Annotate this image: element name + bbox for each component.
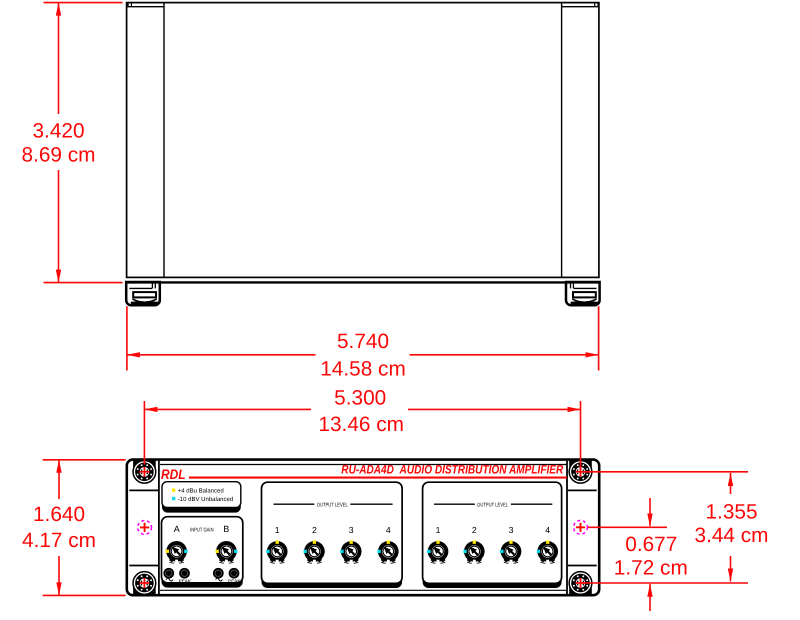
- svg-text:5.300: 5.300: [334, 387, 386, 410]
- svg-text:RDL: RDL: [161, 467, 186, 482]
- svg-text:OUTPUT LEVEL: OUTPUT LEVEL: [477, 502, 508, 508]
- svg-text:3.420: 3.420: [32, 120, 84, 143]
- svg-text:B: B: [223, 524, 229, 534]
- svg-text:13.46 cm: 13.46 cm: [318, 413, 404, 436]
- svg-text:3: 3: [509, 525, 514, 535]
- svg-text:3.44 cm: 3.44 cm: [695, 524, 769, 547]
- svg-text:A: A: [174, 524, 180, 534]
- svg-text:-10 dBV Unbalanced: -10 dBV Unbalanced: [178, 496, 233, 503]
- svg-text:4.17 cm: 4.17 cm: [22, 529, 96, 552]
- svg-text:1: 1: [436, 525, 441, 535]
- svg-text:2: 2: [312, 525, 317, 535]
- svg-text:4: 4: [545, 525, 550, 535]
- svg-text:1.72 cm: 1.72 cm: [614, 557, 688, 580]
- svg-text:INPUT GAIN: INPUT GAIN: [190, 527, 214, 533]
- svg-text:RU-ADA4D AUDIO DISTRIBUTION A: RU-ADA4D AUDIO DISTRIBUTION AMPLIFIER: [341, 463, 563, 477]
- svg-text:1: 1: [275, 525, 280, 535]
- svg-text:+4 dBu Balanced: +4 dBu Balanced: [178, 488, 224, 495]
- svg-text:PEAK: PEAK: [179, 578, 192, 583]
- svg-text:PEAK: PEAK: [228, 578, 241, 583]
- svg-text:3: 3: [349, 525, 354, 535]
- svg-text:4: 4: [386, 525, 391, 535]
- svg-text:1.640: 1.640: [33, 503, 85, 526]
- svg-text:5.740: 5.740: [337, 330, 389, 353]
- svg-text:2: 2: [472, 525, 477, 535]
- svg-text:1.355: 1.355: [705, 500, 757, 523]
- svg-text:OUTPUT LEVEL: OUTPUT LEVEL: [317, 502, 348, 508]
- svg-text:14.58 cm: 14.58 cm: [320, 358, 406, 381]
- svg-text:0.677: 0.677: [625, 533, 677, 556]
- svg-text:8.69 cm: 8.69 cm: [22, 144, 96, 167]
